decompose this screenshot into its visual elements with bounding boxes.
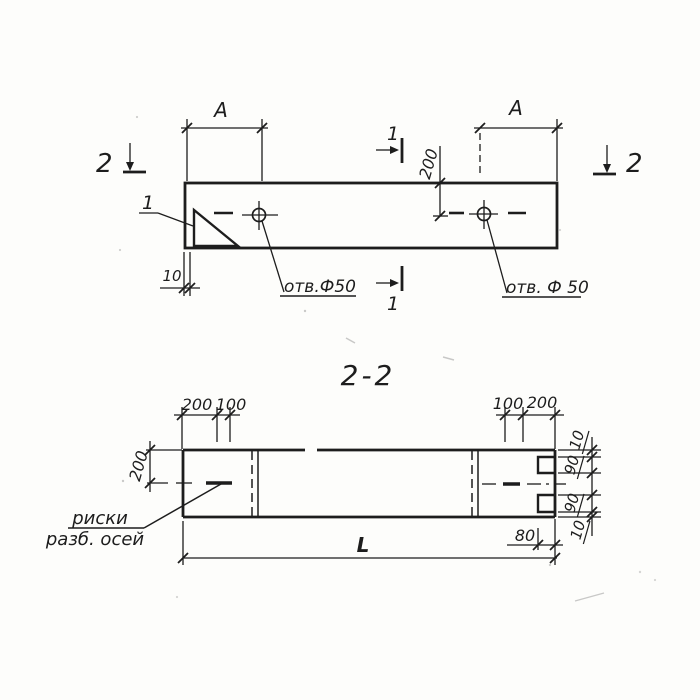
detail-callout-label: 1 (142, 192, 154, 214)
dim-chain-right: 10 90 90 10 (558, 426, 601, 544)
section-title: 2-2 (341, 359, 396, 392)
arrow-right-icon (390, 279, 399, 287)
dim-10-plan: 10 (160, 252, 200, 296)
dim-L-label: L (357, 533, 370, 557)
dim-chain-top-right: 100 200 (493, 393, 564, 449)
notch-lower (538, 495, 556, 512)
hole-right (449, 200, 526, 229)
dim-10-right-bottom: 10 (566, 516, 590, 544)
section-2-right-label: 2 (626, 149, 643, 179)
dim-90-right-upper: 90 (560, 451, 584, 479)
section-marker-2-left: 2 (96, 143, 146, 179)
hidden-edges (252, 451, 478, 516)
technical-drawing-page: A A 200 2 (0, 0, 700, 700)
plan-beam-outline (185, 183, 557, 248)
dim-200-top-right: 200 (527, 393, 558, 412)
hole-label-left: отв.Ф50 (262, 221, 356, 297)
dim-height-left: 200 (125, 441, 182, 492)
hole-left-text: отв.Ф50 (284, 277, 356, 297)
arrow-down-icon (603, 164, 611, 173)
dim-100-top-right: 100 (493, 394, 524, 413)
dim-length-L: L (178, 519, 560, 565)
dim-200-plan-label: 200 (415, 147, 442, 182)
technical-drawing: A A 200 2 (0, 0, 700, 700)
dim-chain-top-left: 200 100 (174, 395, 246, 449)
dim-200-top-left: 200 (182, 395, 213, 414)
section-beam-outline (183, 450, 555, 517)
dim-a-right-label: A (507, 96, 523, 120)
section-view-2-2: 2-2 (45, 359, 601, 565)
svg-text:10: 10 (566, 428, 589, 451)
dim-a-left-label: A (212, 98, 228, 122)
section-1-bottom-label: 1 (387, 293, 399, 315)
section-2-left-label: 2 (96, 149, 113, 179)
section-marker-1-top: 1 (376, 123, 402, 163)
dim-a-left: A (181, 98, 268, 181)
dim-10-plan-label: 10 (162, 267, 181, 285)
dim-a-right: A (474, 96, 563, 181)
section-marker-2-right: 2 (593, 145, 643, 179)
hole-left (214, 201, 278, 230)
section-marker-1-bottom: 1 (376, 266, 402, 315)
svg-text:10: 10 (567, 518, 590, 541)
hole-right-text: отв. Ф 50 (506, 278, 589, 298)
axis-marks (147, 483, 566, 484)
corner-rib-triangle (194, 210, 238, 246)
notch-upper (538, 457, 556, 473)
dim-90-right-lower: 90 (560, 489, 584, 517)
axis-note-line2: разб. осей (45, 529, 145, 550)
arrow-down-icon (126, 162, 134, 171)
dim-100-top-left: 100 (216, 395, 247, 414)
top-view: A A 200 2 (96, 96, 643, 315)
section-1-top-label: 1 (387, 123, 399, 145)
axis-note-line1: риски (71, 508, 128, 529)
dim-80-label: 80 (515, 526, 535, 545)
arrow-right-icon (390, 146, 399, 154)
dim-200-height-label: 200 (125, 449, 152, 484)
hole-label-right: отв. Ф 50 (487, 220, 589, 298)
